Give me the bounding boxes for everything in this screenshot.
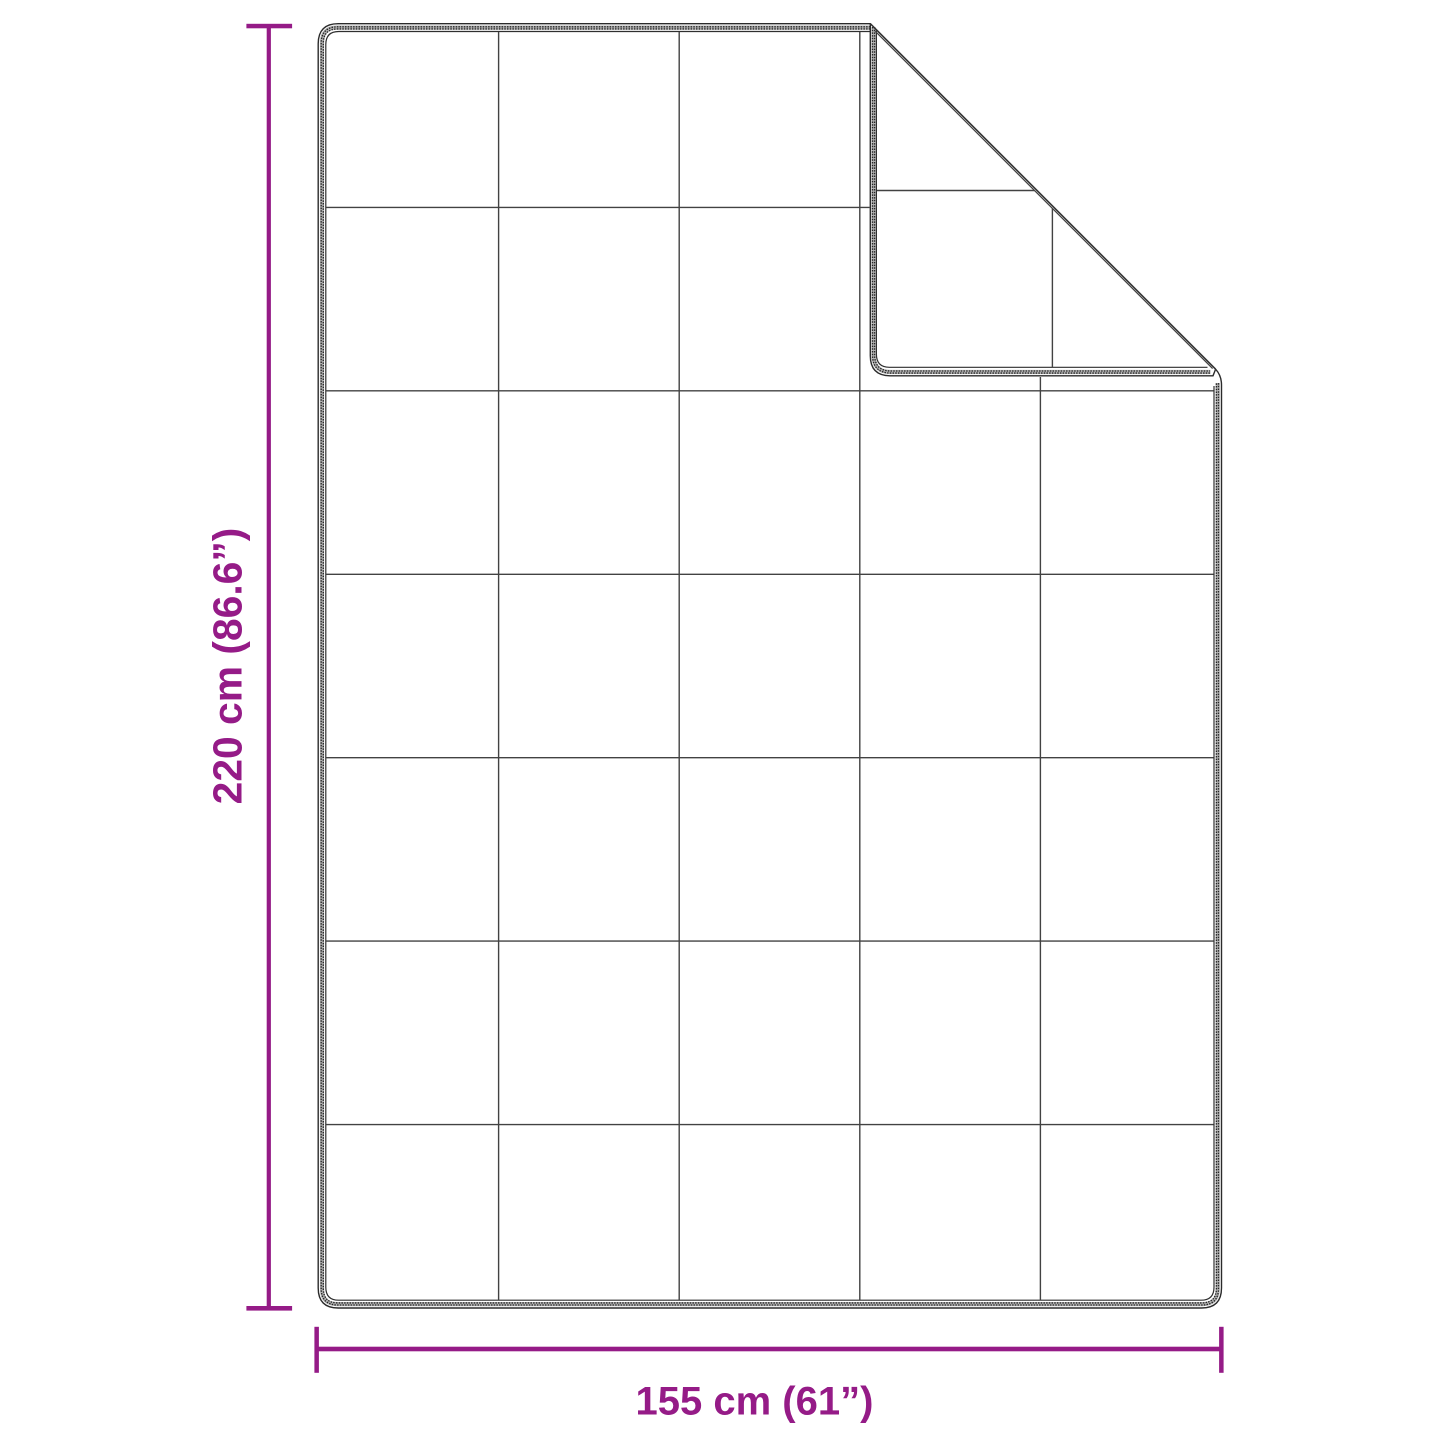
svg-text:220 cm (86.6”): 220 cm (86.6”) [205, 528, 251, 805]
svg-text:155 cm (61”): 155 cm (61”) [636, 1380, 874, 1424]
